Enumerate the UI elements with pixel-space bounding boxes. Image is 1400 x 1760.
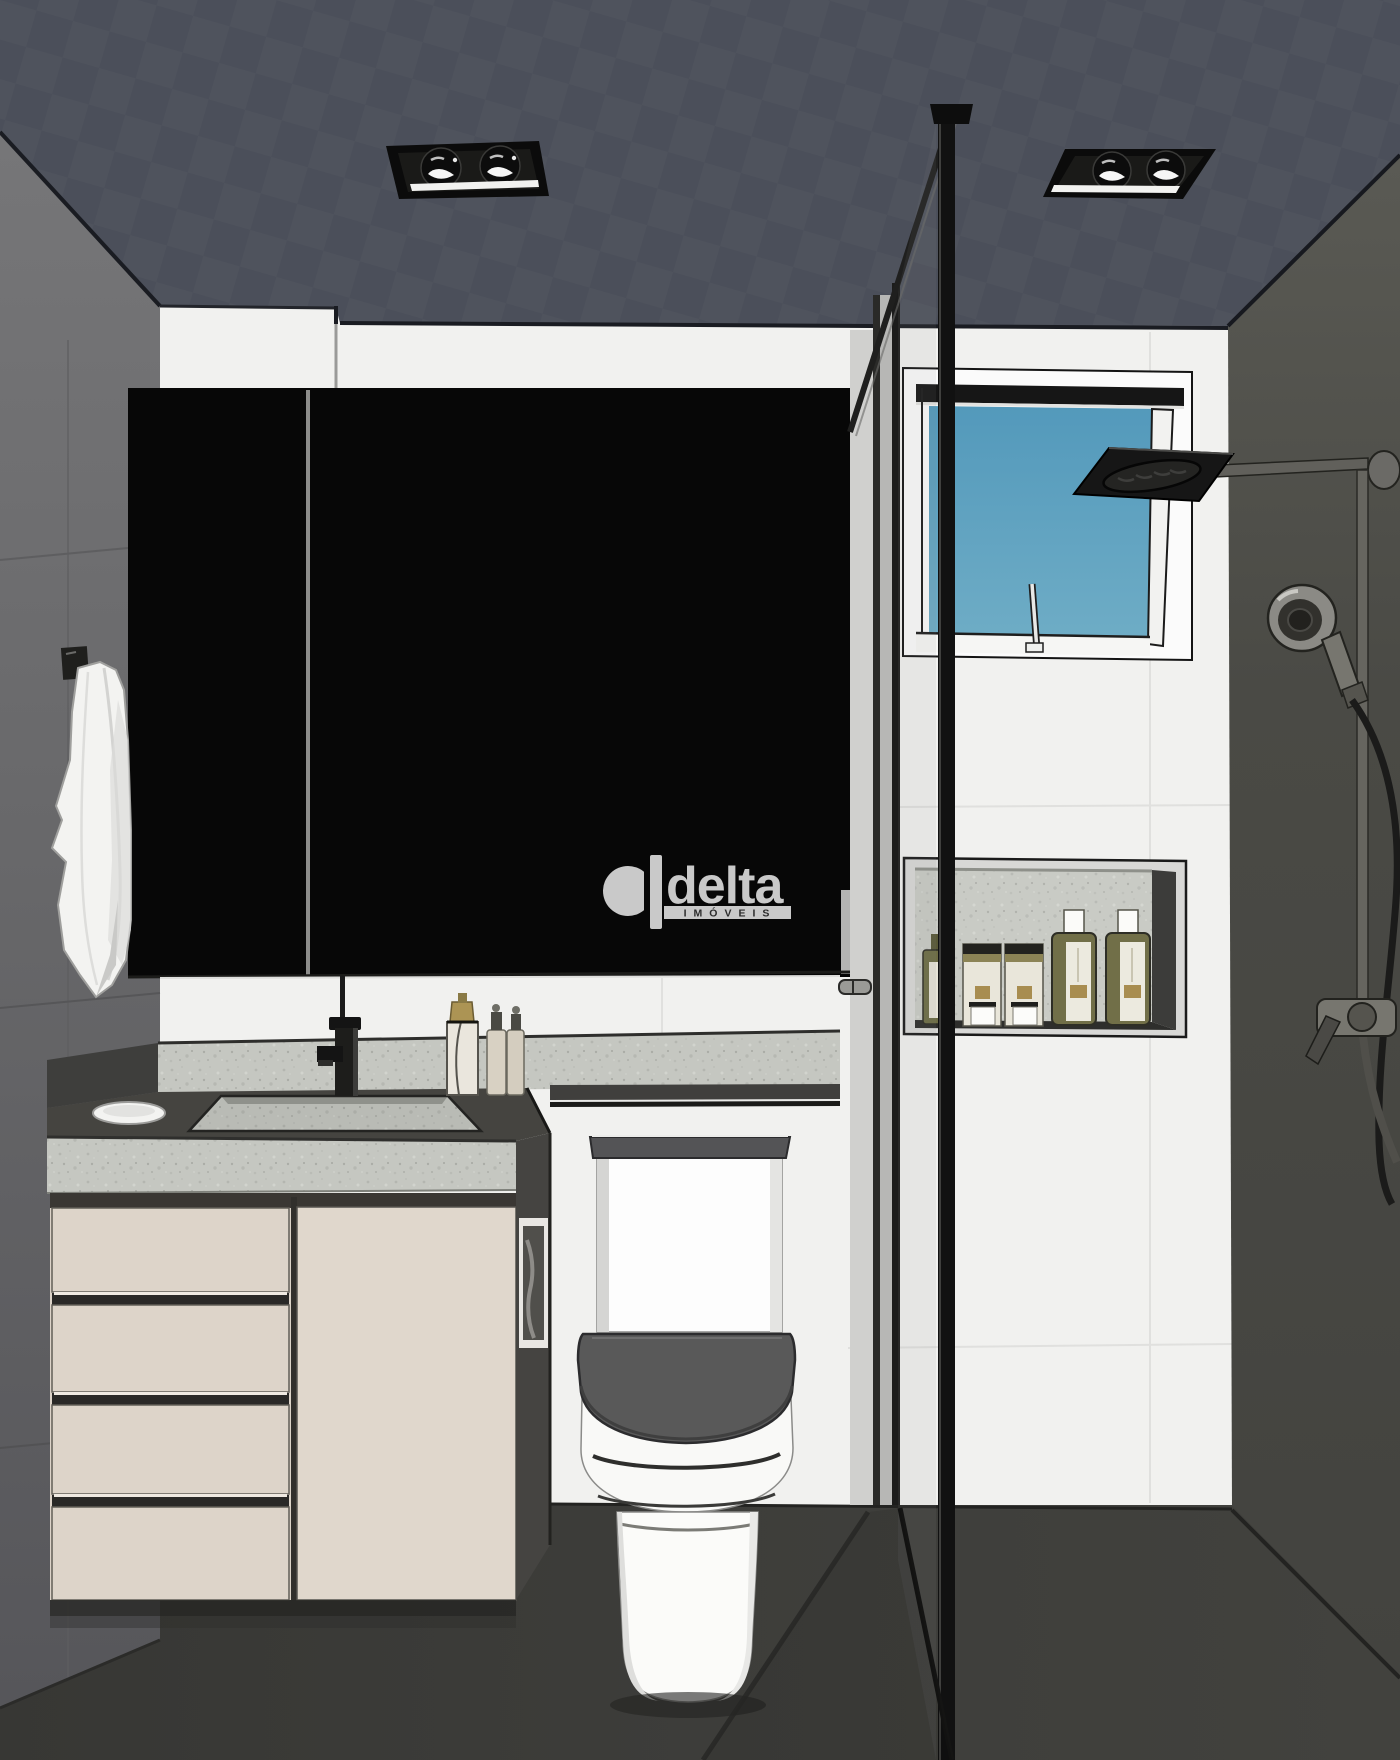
- svg-text:IMÓVEIS: IMÓVEIS: [684, 907, 777, 920]
